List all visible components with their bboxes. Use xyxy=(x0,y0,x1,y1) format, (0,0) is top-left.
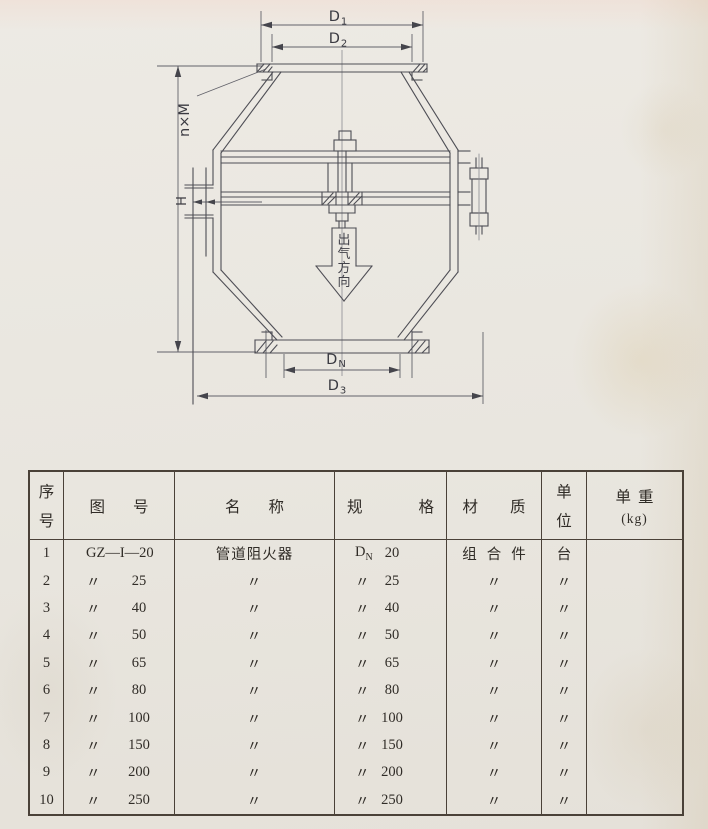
cell-name: 〃 xyxy=(175,759,335,786)
cell-spec: 〃200 xyxy=(335,759,447,786)
cell-spec: 〃80 xyxy=(335,677,447,704)
header-seq: 序号 xyxy=(30,472,64,539)
cell-fig-no: 〃80 xyxy=(64,677,175,704)
cell-fig-no: 〃150 xyxy=(64,732,175,759)
cell-spec: 〃100 xyxy=(335,704,447,731)
cell-weight xyxy=(587,540,682,567)
cell-name: 〃 xyxy=(175,787,335,814)
cell-name: 〃 xyxy=(175,677,335,704)
cell-weight xyxy=(587,787,682,814)
cell-unit: 〃 xyxy=(542,622,587,649)
cell-material: 〃 xyxy=(447,567,542,594)
cell-seq: 1 xyxy=(30,540,64,567)
cell-weight xyxy=(587,595,682,622)
cell-weight xyxy=(587,567,682,594)
cell-weight xyxy=(587,732,682,759)
dim-label-d1: D1 xyxy=(329,9,348,28)
cell-spec: 〃250 xyxy=(335,787,447,814)
cell-name: 〃 xyxy=(175,732,335,759)
cell-spec: DN20 xyxy=(335,540,447,567)
header-spec: 规格 xyxy=(335,472,447,539)
cell-fig-no: 〃100 xyxy=(64,704,175,731)
svg-text:气: 气 xyxy=(337,246,350,261)
cell-material: 〃 xyxy=(447,677,542,704)
right-clamp-bolt xyxy=(458,151,488,240)
cell-seq: 8 xyxy=(30,732,64,759)
table-row: 1 GZ—I—20 管道阻火器 DN20 组合件 台 xyxy=(30,540,682,567)
cell-material: 组合件 xyxy=(447,540,542,567)
cell-seq: 4 xyxy=(30,622,64,649)
table-row: 10 〃250 〃 〃250 〃 〃 xyxy=(30,787,682,814)
cell-weight xyxy=(587,759,682,786)
header-fig-no: 图号 xyxy=(64,472,175,539)
svg-text:向: 向 xyxy=(337,274,350,289)
cell-seq: 7 xyxy=(30,704,64,731)
cell-fig-no: 〃200 xyxy=(64,759,175,786)
cell-seq: 5 xyxy=(30,650,64,677)
cell-unit: 〃 xyxy=(542,732,587,759)
table-row: 2 〃25 〃 〃25 〃 〃 xyxy=(30,567,682,594)
table-row: 9 〃200 〃 〃200 〃 〃 xyxy=(30,759,682,786)
cell-seq: 10 xyxy=(30,787,64,814)
dim-label-h: H xyxy=(175,196,190,206)
table-row: 3 〃40 〃 〃40 〃 〃 xyxy=(30,595,682,622)
table-row: 8 〃150 〃 〃150 〃 〃 xyxy=(30,732,682,759)
table-row: 5 〃65 〃 〃65 〃 〃 xyxy=(30,650,682,677)
table-header-row: 序号 图号 名称 规格 材质 单位 单重(kg) xyxy=(30,472,682,540)
cell-spec: 〃50 xyxy=(335,622,447,649)
cell-unit: 〃 xyxy=(542,677,587,704)
cell-seq: 2 xyxy=(30,567,64,594)
svg-text:出: 出 xyxy=(337,232,350,247)
dim-label-nxm: n×M xyxy=(177,103,193,137)
cell-unit: 〃 xyxy=(542,704,587,731)
cell-name: 管道阻火器 xyxy=(175,540,335,567)
cell-spec: 〃65 xyxy=(335,650,447,677)
cell-material: 〃 xyxy=(447,759,542,786)
cell-name: 〃 xyxy=(175,595,335,622)
dim-label-dn: DN xyxy=(326,352,346,370)
svg-text:方: 方 xyxy=(337,260,350,275)
cell-weight xyxy=(587,677,682,704)
cell-name: 〃 xyxy=(175,704,335,731)
cell-unit: 〃 xyxy=(542,595,587,622)
flame-arrester-technical-drawing: D1 D2 DN D3 n×M H 出 气 方 向 xyxy=(0,0,708,470)
cell-fig-no: 〃65 xyxy=(64,650,175,677)
dim-label-d3: D3 xyxy=(328,378,347,397)
cell-fig-no: 〃50 xyxy=(64,622,175,649)
cell-fig-no: GZ—I—20 xyxy=(64,540,175,567)
cell-weight xyxy=(587,704,682,731)
header-name: 名称 xyxy=(175,472,335,539)
table-row: 4 〃50 〃 〃50 〃 〃 xyxy=(30,622,682,649)
cell-name: 〃 xyxy=(175,622,335,649)
cell-unit: 台 xyxy=(542,540,587,567)
cell-fig-no: 〃250 xyxy=(64,787,175,814)
cell-weight xyxy=(587,622,682,649)
cell-fig-no: 〃40 xyxy=(64,595,175,622)
cell-material: 〃 xyxy=(447,732,542,759)
cell-unit: 〃 xyxy=(542,787,587,814)
table-row: 6 〃80 〃 〃80 〃 〃 xyxy=(30,677,682,704)
cell-seq: 3 xyxy=(30,595,64,622)
cell-material: 〃 xyxy=(447,787,542,814)
cell-material: 〃 xyxy=(447,650,542,677)
cell-material: 〃 xyxy=(447,595,542,622)
header-material: 材质 xyxy=(447,472,542,539)
header-unit: 单位 xyxy=(542,472,587,539)
cell-unit: 〃 xyxy=(542,650,587,677)
spec-table: 序号 图号 名称 规格 材质 单位 单重(kg) 1 GZ—I—20 管道阻火器… xyxy=(28,470,684,816)
cell-name: 〃 xyxy=(175,650,335,677)
cell-spec: 〃25 xyxy=(335,567,447,594)
header-unit-weight: 单重(kg) xyxy=(587,472,682,539)
cell-name: 〃 xyxy=(175,567,335,594)
cell-seq: 9 xyxy=(30,759,64,786)
outlet-direction-text: 出 气 方 向 xyxy=(337,232,350,289)
dim-label-d2: D2 xyxy=(329,31,348,50)
cell-seq: 6 xyxy=(30,677,64,704)
cell-material: 〃 xyxy=(447,622,542,649)
scanned-document-page: D1 D2 DN D3 n×M H 出 气 方 向 序号 图号 名称 规格 材质… xyxy=(0,0,708,829)
cell-spec: 〃150 xyxy=(335,732,447,759)
cell-spec: 〃40 xyxy=(335,595,447,622)
cell-weight xyxy=(587,650,682,677)
table-row: 7 〃100 〃 〃100 〃 〃 xyxy=(30,704,682,731)
cell-material: 〃 xyxy=(447,704,542,731)
cell-unit: 〃 xyxy=(542,567,587,594)
cell-unit: 〃 xyxy=(542,759,587,786)
cell-fig-no: 〃25 xyxy=(64,567,175,594)
